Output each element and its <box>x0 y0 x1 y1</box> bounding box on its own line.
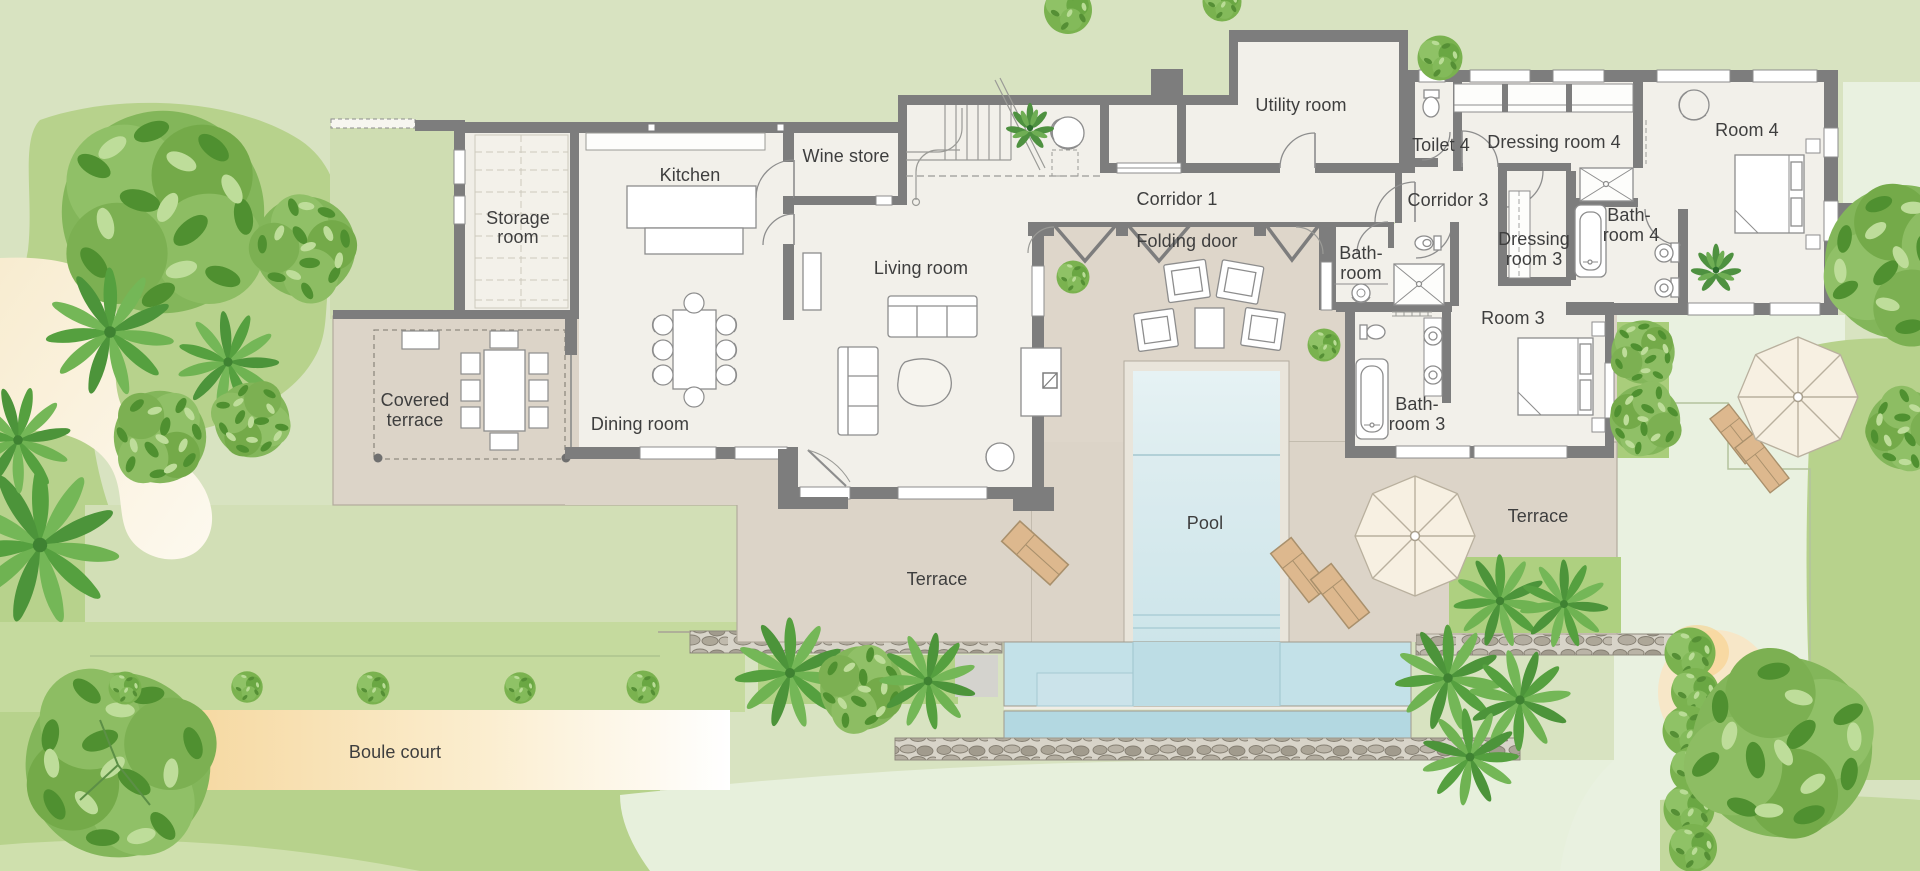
svg-text:Kitchen: Kitchen <box>660 165 721 185</box>
svg-text:Storage: Storage <box>486 208 550 228</box>
svg-text:Corridor 3: Corridor 3 <box>1407 190 1488 210</box>
svg-text:Utility room: Utility room <box>1255 95 1346 115</box>
svg-text:Toilet 4: Toilet 4 <box>1412 135 1470 155</box>
svg-text:Bath-: Bath- <box>1395 394 1439 414</box>
svg-text:Dining room: Dining room <box>591 414 689 434</box>
svg-text:Corridor 1: Corridor 1 <box>1136 189 1217 209</box>
svg-text:Terrace: Terrace <box>1508 506 1569 526</box>
svg-text:Covered: Covered <box>381 390 450 410</box>
svg-text:room 3: room 3 <box>1389 414 1446 434</box>
svg-text:terrace: terrace <box>387 410 444 430</box>
svg-text:Wine store: Wine store <box>802 146 889 166</box>
svg-text:Boule court: Boule court <box>349 742 441 762</box>
svg-text:Dressing: Dressing <box>1498 229 1570 249</box>
svg-text:room: room <box>497 227 538 247</box>
svg-text:room 3: room 3 <box>1506 249 1563 269</box>
svg-text:Room 3: Room 3 <box>1481 308 1545 328</box>
svg-text:Terrace: Terrace <box>907 569 968 589</box>
svg-text:Pool: Pool <box>1187 513 1223 533</box>
svg-text:room 4: room 4 <box>1603 225 1660 245</box>
svg-text:Folding door: Folding door <box>1136 231 1237 251</box>
svg-text:Living room: Living room <box>874 258 968 278</box>
svg-text:Room 4: Room 4 <box>1715 120 1779 140</box>
svg-text:Bath-: Bath- <box>1339 243 1383 263</box>
svg-text:Dressing room 4: Dressing room 4 <box>1487 132 1621 152</box>
svg-text:Bath-: Bath- <box>1607 205 1651 225</box>
svg-text:room: room <box>1340 263 1381 283</box>
